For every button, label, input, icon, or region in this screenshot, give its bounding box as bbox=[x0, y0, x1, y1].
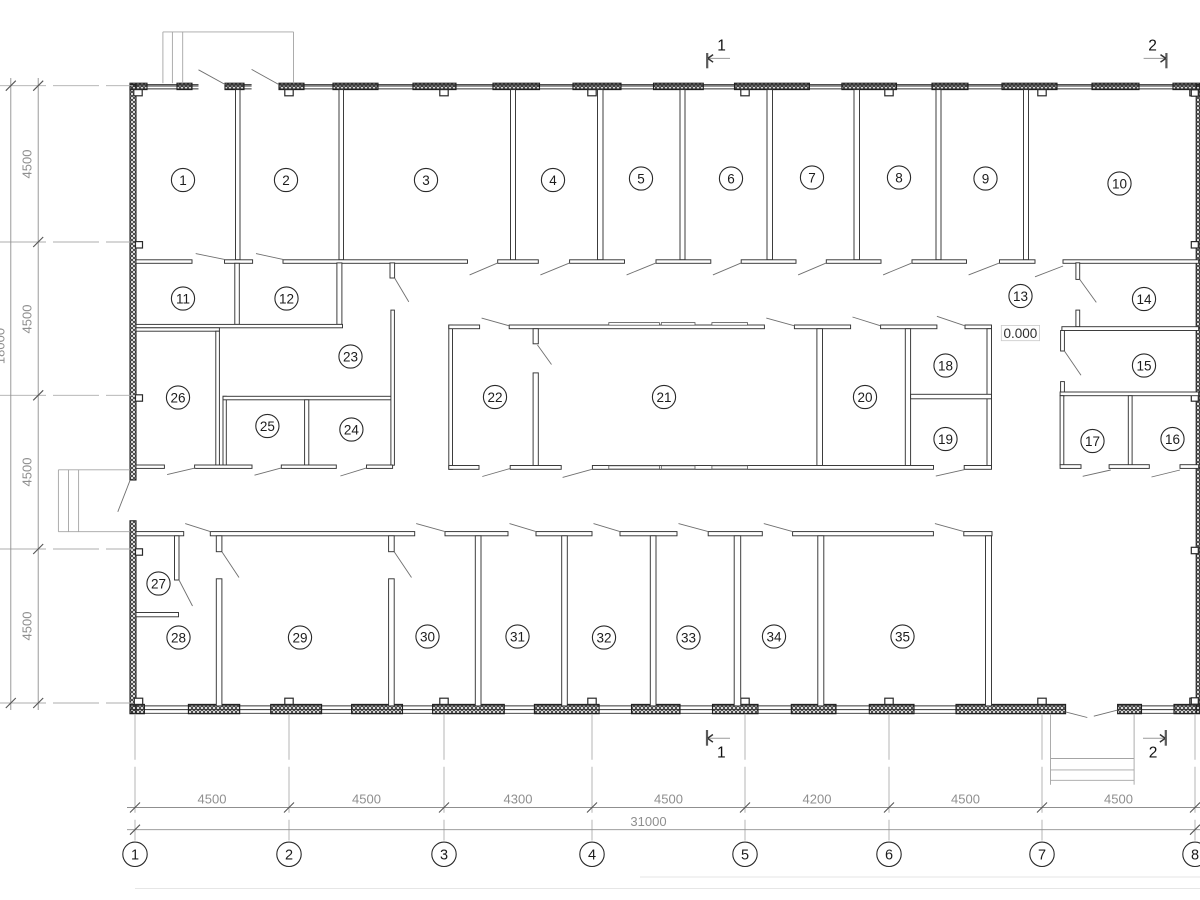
svg-text:20: 20 bbox=[857, 390, 872, 405]
svg-text:7: 7 bbox=[1038, 847, 1046, 863]
svg-text:1: 1 bbox=[131, 847, 139, 863]
svg-text:3: 3 bbox=[440, 847, 448, 863]
svg-text:4500: 4500 bbox=[20, 458, 35, 487]
svg-text:2: 2 bbox=[285, 847, 293, 863]
svg-text:24: 24 bbox=[344, 422, 360, 437]
svg-text:27: 27 bbox=[151, 576, 166, 591]
svg-text:34: 34 bbox=[766, 629, 782, 644]
svg-text:7: 7 bbox=[808, 170, 816, 185]
svg-text:9: 9 bbox=[982, 171, 990, 186]
svg-text:8: 8 bbox=[895, 170, 903, 185]
svg-text:18: 18 bbox=[938, 358, 953, 373]
svg-text:4: 4 bbox=[549, 173, 557, 188]
svg-text:17: 17 bbox=[1085, 434, 1100, 449]
svg-text:29: 29 bbox=[292, 630, 307, 645]
svg-text:32: 32 bbox=[596, 630, 611, 645]
svg-text:21: 21 bbox=[656, 390, 671, 405]
svg-text:26: 26 bbox=[170, 390, 185, 405]
svg-text:18000: 18000 bbox=[0, 328, 8, 364]
svg-text:13: 13 bbox=[1013, 289, 1028, 304]
svg-text:25: 25 bbox=[260, 419, 275, 434]
svg-text:11: 11 bbox=[176, 291, 190, 306]
svg-text:22: 22 bbox=[487, 390, 502, 405]
svg-text:30: 30 bbox=[420, 629, 435, 644]
svg-text:4500: 4500 bbox=[198, 792, 227, 807]
svg-text:35: 35 bbox=[895, 629, 910, 644]
svg-text:1: 1 bbox=[179, 173, 187, 188]
svg-text:0.000: 0.000 bbox=[1004, 326, 1038, 341]
svg-text:1: 1 bbox=[717, 38, 726, 55]
svg-text:1: 1 bbox=[717, 744, 726, 761]
svg-text:4500: 4500 bbox=[654, 792, 683, 807]
svg-text:4500: 4500 bbox=[20, 305, 35, 334]
svg-text:5: 5 bbox=[637, 171, 645, 186]
svg-text:2: 2 bbox=[282, 173, 290, 188]
svg-text:23: 23 bbox=[343, 349, 358, 364]
svg-text:4300: 4300 bbox=[504, 792, 533, 807]
svg-text:28: 28 bbox=[171, 630, 186, 645]
svg-text:3: 3 bbox=[422, 173, 430, 188]
svg-text:5: 5 bbox=[741, 847, 749, 863]
svg-text:6: 6 bbox=[885, 847, 893, 863]
svg-text:19: 19 bbox=[938, 432, 953, 447]
svg-text:16: 16 bbox=[1165, 432, 1180, 447]
svg-text:12: 12 bbox=[279, 291, 294, 306]
svg-text:10: 10 bbox=[1112, 176, 1127, 191]
svg-text:4500: 4500 bbox=[951, 792, 980, 807]
svg-text:4500: 4500 bbox=[352, 792, 381, 807]
svg-text:15: 15 bbox=[1136, 358, 1151, 373]
svg-text:2: 2 bbox=[1148, 38, 1157, 55]
svg-text:6: 6 bbox=[727, 171, 735, 186]
svg-text:33: 33 bbox=[681, 630, 696, 645]
svg-text:2: 2 bbox=[1149, 744, 1158, 761]
svg-text:4500: 4500 bbox=[20, 612, 35, 641]
svg-text:31000: 31000 bbox=[630, 814, 666, 829]
svg-text:4500: 4500 bbox=[20, 150, 35, 179]
svg-text:14: 14 bbox=[1136, 292, 1152, 307]
svg-text:4: 4 bbox=[588, 847, 596, 863]
svg-text:8: 8 bbox=[1191, 847, 1199, 863]
svg-text:4200: 4200 bbox=[803, 792, 832, 807]
svg-text:31: 31 bbox=[510, 629, 525, 644]
svg-text:4500: 4500 bbox=[1104, 792, 1133, 807]
